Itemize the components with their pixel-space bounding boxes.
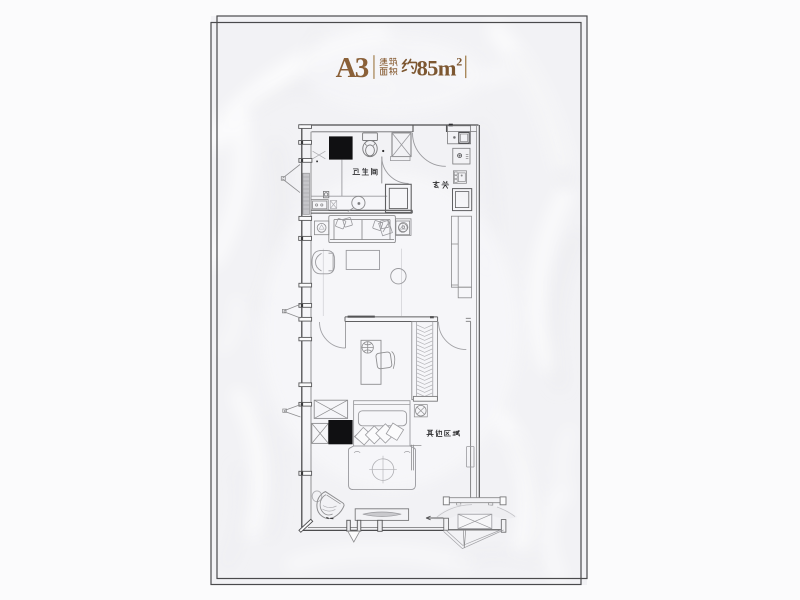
svg-text:A3: A3 xyxy=(336,52,369,84)
svg-text:85m: 85m xyxy=(417,55,457,80)
svg-text:2: 2 xyxy=(456,55,462,69)
